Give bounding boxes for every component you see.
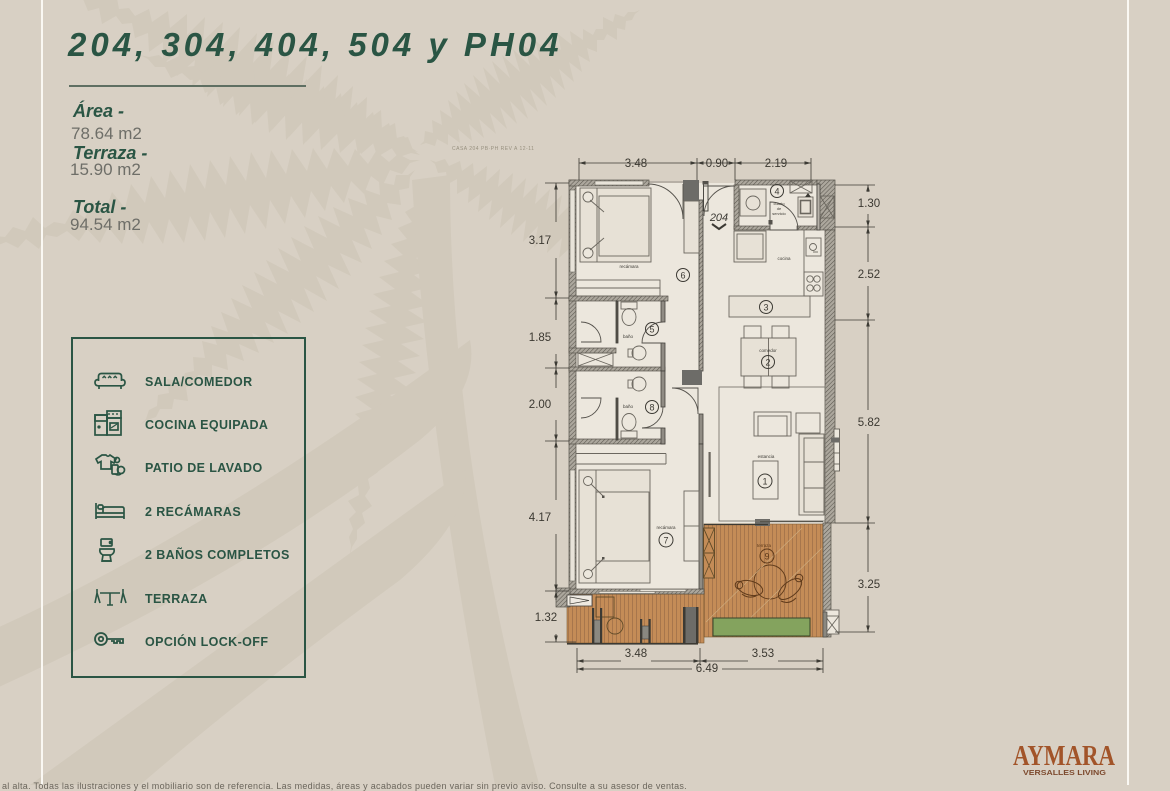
svg-text:baño: baño [623,334,634,339]
svg-text:AYMARA: AYMARA [1013,741,1116,772]
svg-text:3: 3 [763,303,768,313]
svg-text:recámara: recámara [656,525,676,530]
svg-text:recámara: recámara [619,264,639,269]
svg-text:2: 2 [765,358,770,368]
svg-text:5.82: 5.82 [858,417,880,429]
svg-text:terraza: terraza [757,543,772,548]
svg-text:9: 9 [764,552,769,562]
svg-text:5: 5 [649,325,654,335]
svg-text:comedor: comedor [759,348,777,353]
svg-text:estancia: estancia [758,454,775,459]
svg-text:baño: baño [623,404,634,409]
svg-text:4.17: 4.17 [529,512,551,524]
svg-text:1.85: 1.85 [529,332,551,344]
svg-text:2.19: 2.19 [765,158,787,170]
svg-text:3.48: 3.48 [625,648,647,660]
svg-text:3.17: 3.17 [529,235,551,247]
svg-text:3.53: 3.53 [752,648,774,660]
svg-text:0.90: 0.90 [706,158,728,170]
svg-text:6: 6 [680,271,685,281]
svg-text:4: 4 [774,187,779,197]
svg-text:204: 204 [709,212,728,224]
svg-text:6.49: 6.49 [696,663,718,675]
svg-text:1: 1 [762,477,767,487]
svg-text:3.25: 3.25 [858,579,880,591]
svg-text:cocina: cocina [777,256,791,261]
svg-text:2.52: 2.52 [858,269,880,281]
svg-text:servicio: servicio [772,211,786,216]
svg-text:7: 7 [663,536,668,546]
svg-text:VERSALLES LIVING: VERSALLES LIVING [1023,770,1107,777]
svg-text:3.48: 3.48 [625,158,647,170]
svg-text:2.00: 2.00 [529,399,551,411]
svg-text:1.30: 1.30 [858,198,880,210]
svg-text:1.32: 1.32 [535,612,557,624]
svg-text:8: 8 [649,403,654,413]
